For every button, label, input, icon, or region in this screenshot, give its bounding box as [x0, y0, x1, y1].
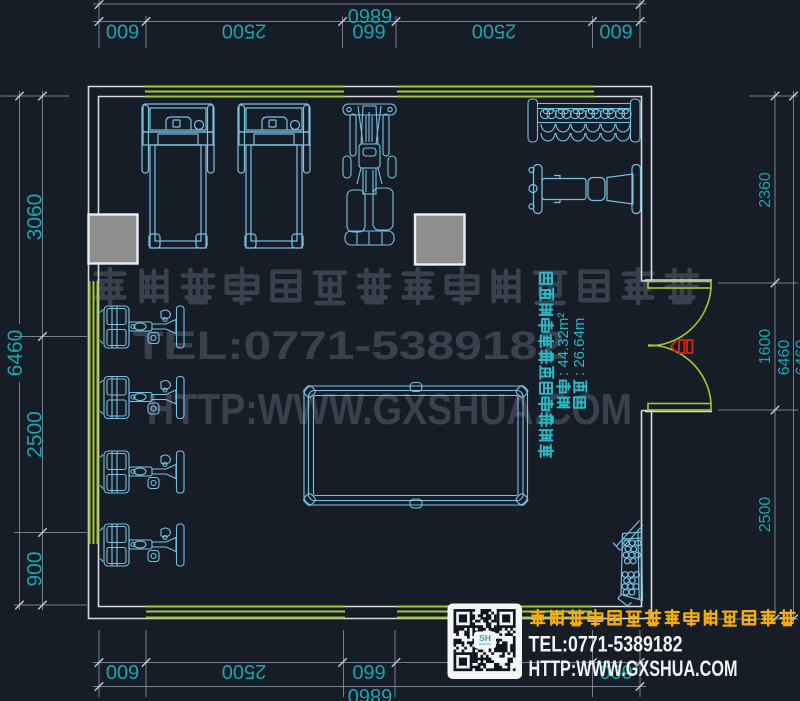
- svg-text:: 26.64m: : 26.64m: [571, 318, 588, 376]
- svg-text:2500: 2500: [472, 20, 517, 42]
- svg-text:600: 600: [106, 660, 139, 682]
- svg-text:2500: 2500: [222, 660, 267, 682]
- svg-text:6460: 6460: [794, 340, 800, 376]
- svg-text:660: 660: [352, 660, 385, 682]
- svg-text:6460: 6460: [776, 340, 793, 376]
- svg-text:900: 900: [24, 551, 47, 586]
- svg-text:600: 600: [599, 20, 632, 42]
- svg-text:6860: 6860: [348, 4, 393, 26]
- svg-text:TEL:0771-5389182: TEL:0771-5389182: [133, 324, 565, 368]
- svg-text:TEL:0771-5389182: TEL:0771-5389182: [529, 632, 683, 657]
- svg-text:600: 600: [106, 20, 139, 42]
- svg-text:6460: 6460: [4, 330, 27, 377]
- svg-text:6860: 6860: [348, 684, 393, 701]
- svg-text:3060: 3060: [24, 194, 47, 241]
- svg-text:2360: 2360: [757, 172, 774, 208]
- svg-text:2500: 2500: [757, 497, 774, 533]
- svg-text:HTTP:WWW.GXSHUA.COM: HTTP:WWW.GXSHUA.COM: [529, 656, 738, 681]
- svg-text:2500: 2500: [24, 411, 47, 458]
- svg-text:1600: 1600: [757, 329, 774, 365]
- svg-text:: 44.32m²: : 44.32m²: [555, 313, 572, 376]
- svg-text:2500: 2500: [222, 20, 267, 42]
- svg-text:SH: SH: [479, 633, 491, 643]
